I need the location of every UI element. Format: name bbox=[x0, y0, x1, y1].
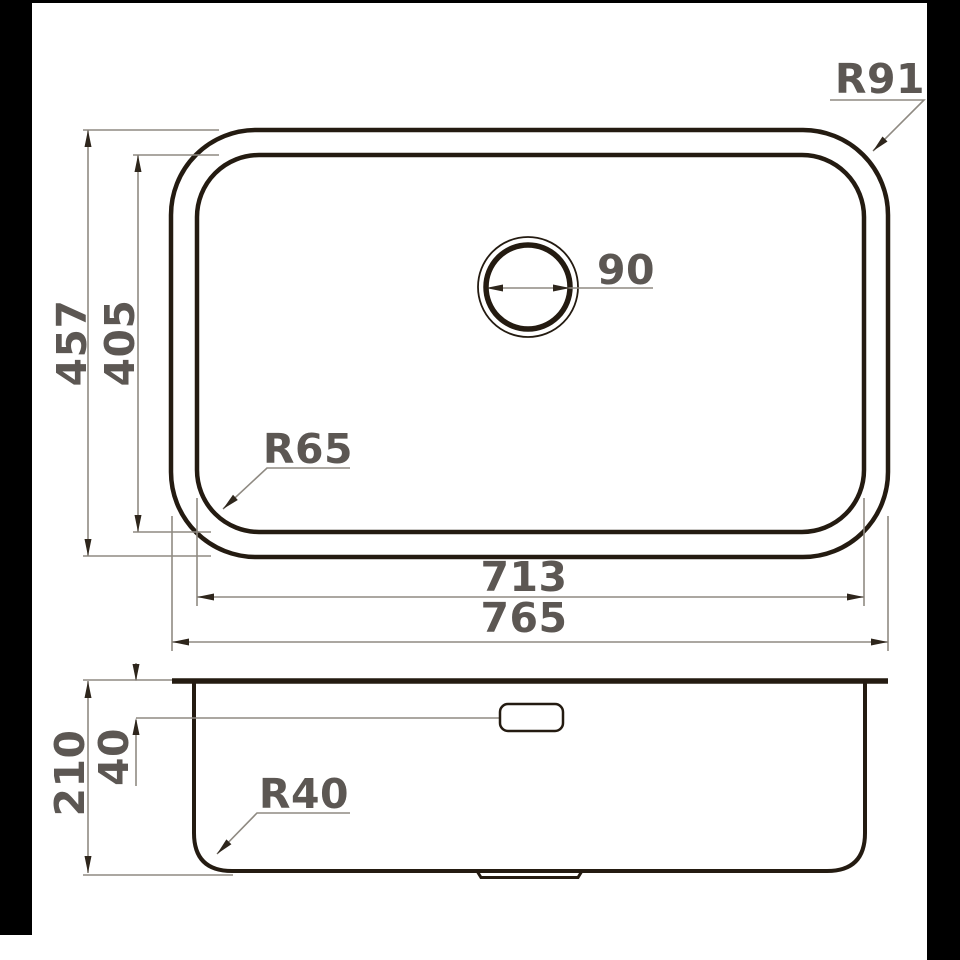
leader-line bbox=[830, 100, 924, 151]
dim-inner-width: 713 bbox=[197, 498, 864, 606]
dim-inner-height: 405 bbox=[96, 155, 219, 532]
frame-bar-left bbox=[0, 0, 32, 935]
dim-label-40: 40 bbox=[90, 728, 138, 786]
side-view: 210 40 R40 bbox=[46, 663, 888, 878]
dim-label-90: 90 bbox=[597, 246, 655, 294]
dim-total-depth: 210 bbox=[46, 680, 233, 875]
arrowhead-up bbox=[85, 681, 92, 698]
dim-label-r65: R65 bbox=[263, 425, 353, 473]
frame bbox=[0, 0, 960, 960]
sink-rim-outline bbox=[171, 130, 888, 557]
leader-r91: R91 bbox=[830, 55, 925, 151]
arrowhead-left bbox=[172, 639, 189, 646]
drawing-canvas: 457 405 713 765 bbox=[0, 0, 960, 960]
arrowhead-up bbox=[85, 130, 92, 147]
leader-r65: R65 bbox=[223, 425, 353, 509]
dim-label-r40: R40 bbox=[259, 770, 349, 818]
arrowhead-down bbox=[133, 664, 140, 681]
dim-label-210: 210 bbox=[46, 729, 94, 816]
arrowhead-up bbox=[135, 155, 142, 172]
arrowhead-right bbox=[871, 639, 888, 646]
sink-dimension-drawing: 457 405 713 765 bbox=[0, 0, 960, 960]
leader-line bbox=[223, 468, 350, 509]
overflow-fitting bbox=[500, 704, 563, 731]
top-view: 457 405 713 765 bbox=[48, 55, 925, 651]
leader-r40: R40 bbox=[217, 770, 350, 854]
dim-overflow-offset: 40 bbox=[90, 663, 140, 786]
sink-bowl-outline bbox=[197, 155, 864, 532]
arrowhead-down bbox=[85, 539, 92, 556]
dim-label-765: 765 bbox=[480, 594, 567, 642]
dim-label-457: 457 bbox=[48, 299, 96, 386]
dim-label-r91: R91 bbox=[835, 55, 925, 103]
frame-bar-top bbox=[0, 0, 960, 3]
leader-line bbox=[217, 813, 350, 854]
arrowhead-down bbox=[135, 515, 142, 532]
arrowhead-left bbox=[197, 594, 214, 601]
dim-label-405: 405 bbox=[96, 299, 144, 386]
frame-bar-right bbox=[927, 0, 960, 960]
arrowhead-right bbox=[847, 594, 864, 601]
arrowhead-down bbox=[85, 856, 92, 873]
